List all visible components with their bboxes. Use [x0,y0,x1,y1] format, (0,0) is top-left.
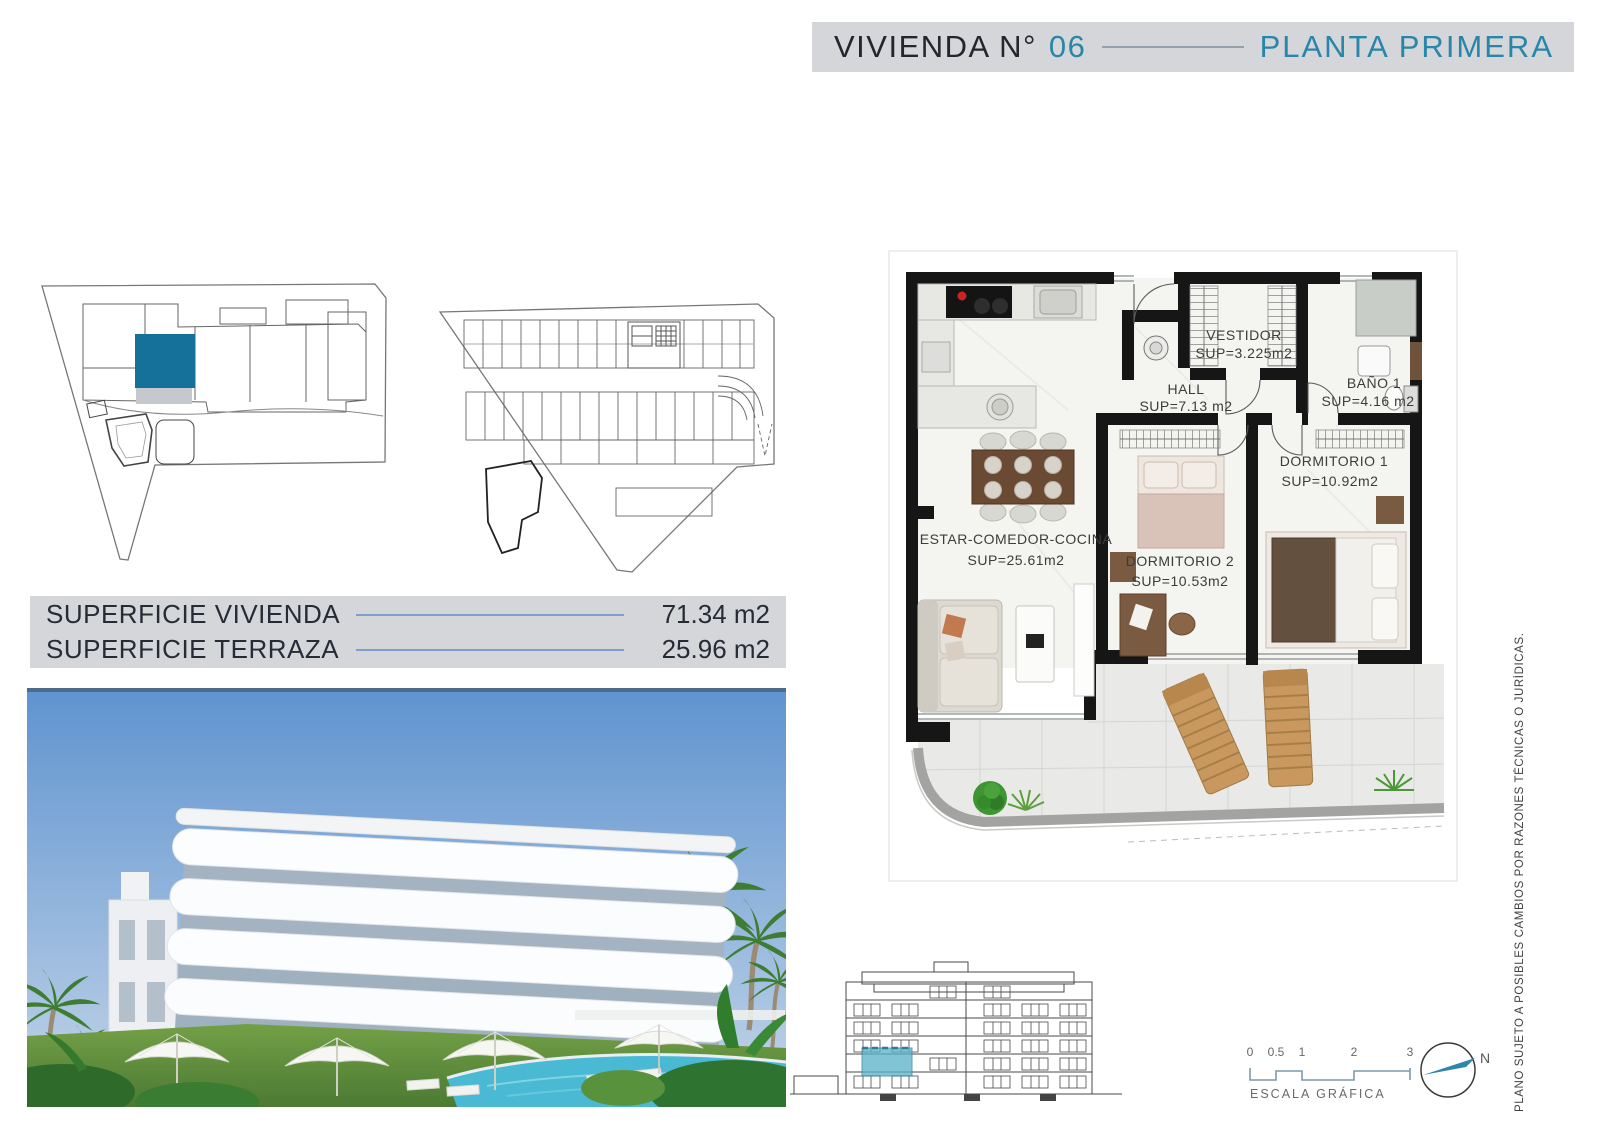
scale-tick: 1 [1299,1045,1306,1059]
site-key-plan [28,252,420,568]
surface-label: SUPERFICIE VIVIENDA [46,599,338,630]
room-sup: SUP=10.53m2 [1132,573,1229,589]
title-bar: VIVIENDA N° 06 PLANTA PRIMERA [812,22,1574,72]
floor-plan: VESTIDOR SUP=3.225m2 HALL SUP=7.13 m2 BA… [888,250,1458,882]
unit-terrace [136,388,192,404]
room-name: DORMITORIO 1 [1280,453,1388,469]
white-fence [575,1010,785,1020]
elevation-outline [790,962,1122,1094]
highlighted-floor [862,1048,912,1076]
scale-bar: 0 0.5 1 2 3 ESCALA GRÁFICA [1236,1040,1436,1102]
title-divider [1102,46,1243,48]
scale-tick: 2 [1351,1045,1358,1059]
room-name: BAÑO 1 [1347,375,1401,391]
photo-top-edge [27,688,786,692]
disclaimer-text: PLANO SUJETO A POSIBLES CAMBIOS POR RAZO… [1514,688,1536,1112]
scale-label: ESCALA GRÁFICA [1250,1086,1386,1101]
surface-label: SUPERFICIE TERRAZA [46,634,338,665]
room-sup: SUP=10.92m2 [1282,473,1379,489]
room-name: DORMITORIO 2 [1126,553,1234,569]
tv-console [1074,584,1094,696]
page: VIVIENDA N° 06 PLANTA PRIMERA [0,0,1600,1130]
bath-sink [1358,346,1390,376]
unit-highlight [135,334,195,388]
shower [1356,280,1416,336]
building-elevation [788,948,1124,1106]
north-label: N [1480,1050,1490,1066]
page-title: VIVIENDA N° [834,29,1037,65]
room-sup: SUP=7.13 m2 [1139,398,1232,414]
dining-set [972,431,1074,523]
building-render [27,688,786,1107]
leader-line [356,614,624,616]
scale-bar-line [1250,1068,1410,1080]
scale-tick: 0 [1247,1045,1254,1059]
surface-value: 71.34 m2 [642,599,770,630]
site-boundary [42,284,386,560]
surface-row: SUPERFICIE VIVIENDA 71.34 m2 [46,599,770,630]
room-name: HALL [1167,381,1204,397]
desk-chair [1169,613,1195,635]
scale-tick: 0.5 [1268,1045,1285,1059]
room-sup: SUP=25.61m2 [968,552,1065,568]
north-compass: N [1408,1026,1508,1112]
leader-line [356,649,624,651]
floor-title: PLANTA PRIMERA [1260,29,1554,65]
garage-plan [428,264,788,576]
nightstand [1376,496,1404,524]
room-name: VESTIDOR [1206,327,1282,343]
compass-needle [1423,1058,1475,1075]
washer [1144,336,1168,360]
dwelling-number: 06 [1049,29,1086,65]
surface-value: 25.96 m2 [642,634,770,665]
scale-ticks: 0 0.5 1 2 3 [1247,1045,1414,1059]
room-sup: SUP=4.16 m2 [1321,393,1414,409]
garage-pool-outline [486,461,542,553]
room-name: ESTAR-COMEDOR-COCINA [920,531,1113,547]
surface-row: SUPERFICIE TERRAZA 25.96 m2 [46,634,770,665]
footings [880,1094,1056,1101]
surface-summary: SUPERFICIE VIVIENDA 71.34 m2 SUPERFICIE … [30,596,786,668]
room-sup: SUP=3.225m2 [1196,345,1293,361]
